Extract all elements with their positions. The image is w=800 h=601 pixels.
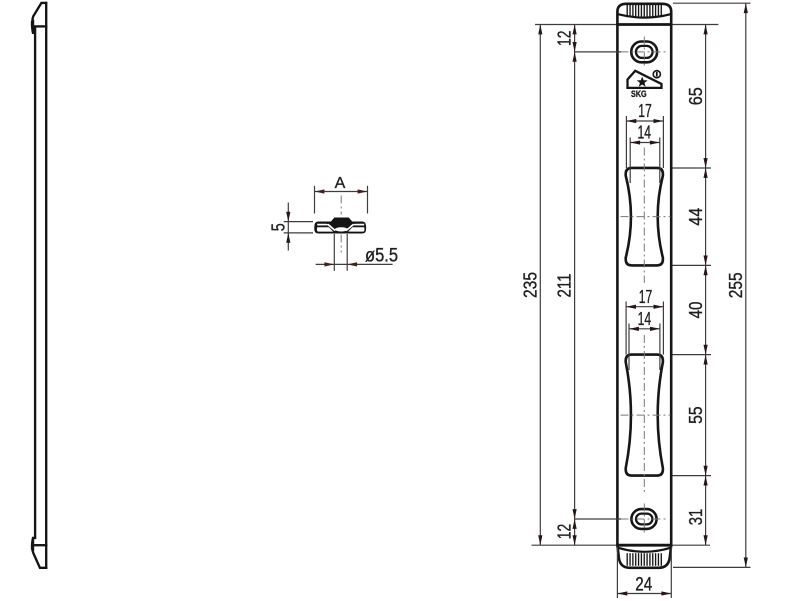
svg-text:14: 14 [638,123,652,143]
svg-text:ø5.5: ø5.5 [365,245,398,266]
svg-text:65: 65 [686,87,706,105]
svg-text:17: 17 [638,101,652,121]
svg-text:A: A [335,175,346,192]
svg-text:17: 17 [639,287,653,307]
svg-text:14: 14 [638,309,652,329]
svg-text:255: 255 [726,272,746,298]
svg-text:55: 55 [686,406,706,424]
svg-text:12: 12 [555,30,575,46]
svg-text:12: 12 [555,524,575,540]
svg-text:5: 5 [269,223,289,231]
svg-text:44: 44 [686,208,706,226]
svg-text:31: 31 [686,509,706,526]
svg-text:40: 40 [686,302,706,319]
svg-text:24: 24 [635,574,652,595]
svg-text:211: 211 [555,274,575,298]
svg-text:235: 235 [521,272,541,298]
svg-text:SKG: SKG [631,89,647,100]
